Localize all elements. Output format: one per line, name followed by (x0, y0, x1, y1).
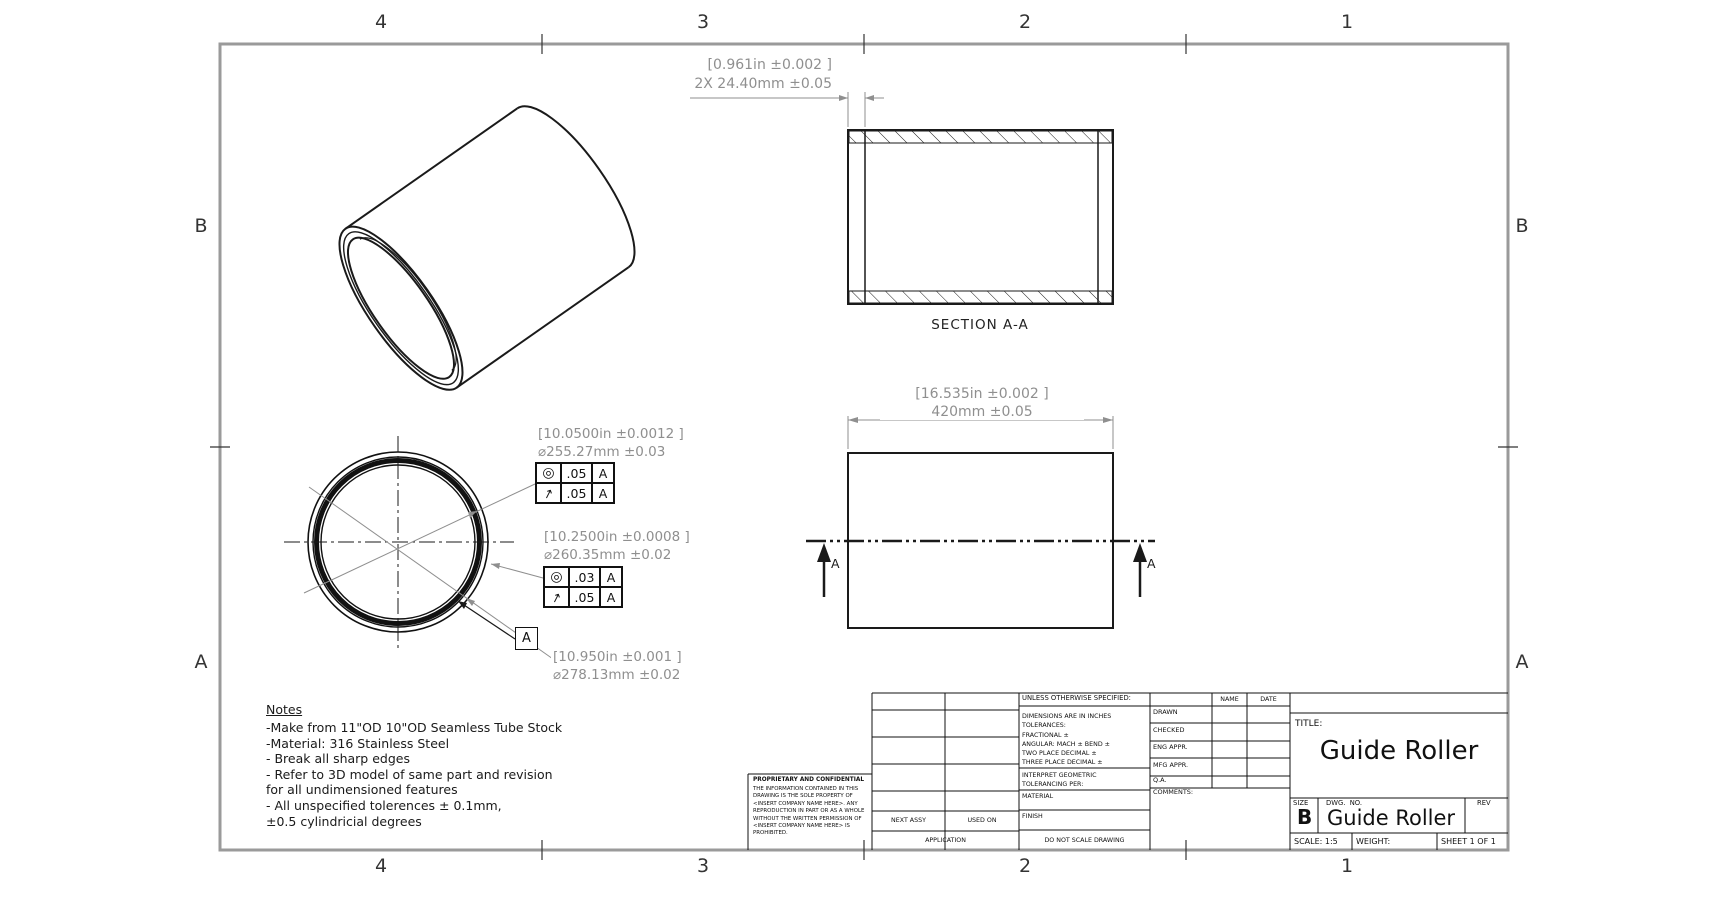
finish-label: FINISH (1022, 813, 1043, 820)
date-column-header: DATE (1247, 696, 1290, 703)
weight-label: WEIGHT: (1356, 837, 1390, 846)
notes-body: -Make from 11"OD 10"OD Seamless Tube Sto… (266, 720, 562, 829)
fcf2-datum-2: A (600, 587, 622, 607)
od-dim-inch: [10.950in ±0.001 ] (551, 650, 684, 666)
zone-label-top-4: 4 (366, 12, 396, 34)
cut-arrow-label-right: A (1147, 557, 1156, 571)
zone-label-right-a: A (1507, 652, 1537, 674)
bore2-dim-inch: [10.2500in ±0.0008 ] (542, 530, 692, 546)
size-value: B (1297, 806, 1312, 829)
fcf1-datum-1: A (592, 463, 614, 483)
section-width-dim-mm: 2X 24.40mm ±0.05 (655, 76, 834, 92)
concentricity-icon: ◎ (544, 567, 569, 587)
od-dim-mm: ⌀278.13mm ±0.02 (551, 668, 682, 684)
fcf1-tolerance-2: .05 (561, 483, 592, 503)
zone-label-left-b: B (186, 216, 216, 238)
drawing-title: Guide Roller (1290, 737, 1508, 767)
sheet-number: SHEET 1 OF 1 (1441, 837, 1496, 846)
bore2-dim-mm: ⌀260.35mm ±0.02 (542, 548, 673, 564)
dwg-no-value: Guide Roller (1327, 806, 1455, 830)
row-drawn: DRAWN (1153, 709, 1178, 716)
row-mfg-appr: MFG APPR. (1153, 762, 1188, 769)
zone-label-top-1: 1 (1332, 12, 1362, 34)
application-label: APPLICATION (872, 837, 1019, 844)
feature-control-frame-2: ◎ .03 A ↗ .05 A (543, 566, 623, 608)
bore1-dim-mm: ⌀255.27mm ±0.03 (536, 445, 667, 461)
scale-value: SCALE: 1:5 (1294, 837, 1338, 846)
isometric-view (319, 90, 655, 406)
zone-label-bottom-2: 2 (1010, 856, 1040, 878)
material-label: MATERIAL (1022, 793, 1053, 800)
title-label: TITLE: (1295, 719, 1322, 729)
length-dim-inch: [16.535in ±0.002 ] (880, 386, 1084, 402)
fcf2-tolerance-2: .05 (569, 587, 600, 607)
zone-label-bottom-3: 3 (688, 856, 718, 878)
row-qa: Q.A. (1153, 777, 1167, 784)
proprietary-body: THE INFORMATION CONTAINED IN THIS DRAWIN… (753, 786, 864, 838)
zone-label-bottom-4: 4 (366, 856, 396, 878)
row-eng-appr: ENG APPR. (1153, 744, 1188, 751)
drawing-sheet: 4 3 2 1 4 3 2 1 B A B A [0.961in ±0.002 … (0, 0, 1733, 901)
concentricity-icon: ◎ (536, 463, 561, 483)
name-column-header: NAME (1212, 696, 1247, 703)
fcf2-datum-1: A (600, 567, 622, 587)
zone-label-top-3: 3 (688, 12, 718, 34)
zone-label-bottom-1: 1 (1332, 856, 1362, 878)
rev-label: REV (1477, 800, 1491, 808)
section-view (690, 92, 1113, 304)
runout-icon: ↗ (536, 483, 561, 503)
zone-label-right-b: B (1507, 216, 1537, 238)
front-view (284, 436, 553, 659)
section-view-label: SECTION A-A (900, 318, 1060, 334)
next-assy-label: NEXT ASSY (872, 817, 945, 824)
row-comments: COMMENTS: (1153, 789, 1193, 796)
length-dim-mm: 420mm ±0.05 (880, 404, 1084, 420)
row-checked: CHECKED (1153, 727, 1184, 734)
do-not-scale-label: DO NOT SCALE DRAWING (1019, 837, 1150, 844)
runout-icon: ↗ (544, 587, 569, 607)
tolerance-notes: DIMENSIONS ARE IN INCHES TOLERANCES: FRA… (1022, 712, 1111, 768)
zone-label-left-a: A (186, 652, 216, 674)
proprietary-heading: PROPRIETARY AND CONFIDENTIAL (753, 777, 864, 784)
section-width-dim-inch: [0.961in ±0.002 ] (655, 57, 834, 73)
bore1-dim-inch: [10.0500in ±0.0012 ] (536, 427, 686, 443)
fcf1-tolerance-1: .05 (561, 463, 592, 483)
unless-otherwise-specified: UNLESS OTHERWISE SPECIFIED: (1022, 695, 1131, 703)
side-view (806, 416, 1155, 628)
length-dimension (848, 416, 1113, 449)
section-width-dimension (690, 92, 884, 127)
fcf2-tolerance-1: .03 (569, 567, 600, 587)
cut-arrow-label-left: A (831, 557, 840, 571)
notes-heading: Notes (266, 703, 302, 717)
datum-leader (458, 601, 515, 639)
datum-feature-symbol: A (515, 627, 538, 650)
fcf1-datum-2: A (592, 483, 614, 503)
interpret-geometric: INTERPRET GEOMETRIC TOLERANCING PER: (1022, 772, 1096, 790)
zone-label-top-2: 2 (1010, 12, 1040, 34)
feature-control-frame-1: ◎ .05 A ↗ .05 A (535, 462, 615, 504)
used-on-label: USED ON (945, 817, 1019, 824)
